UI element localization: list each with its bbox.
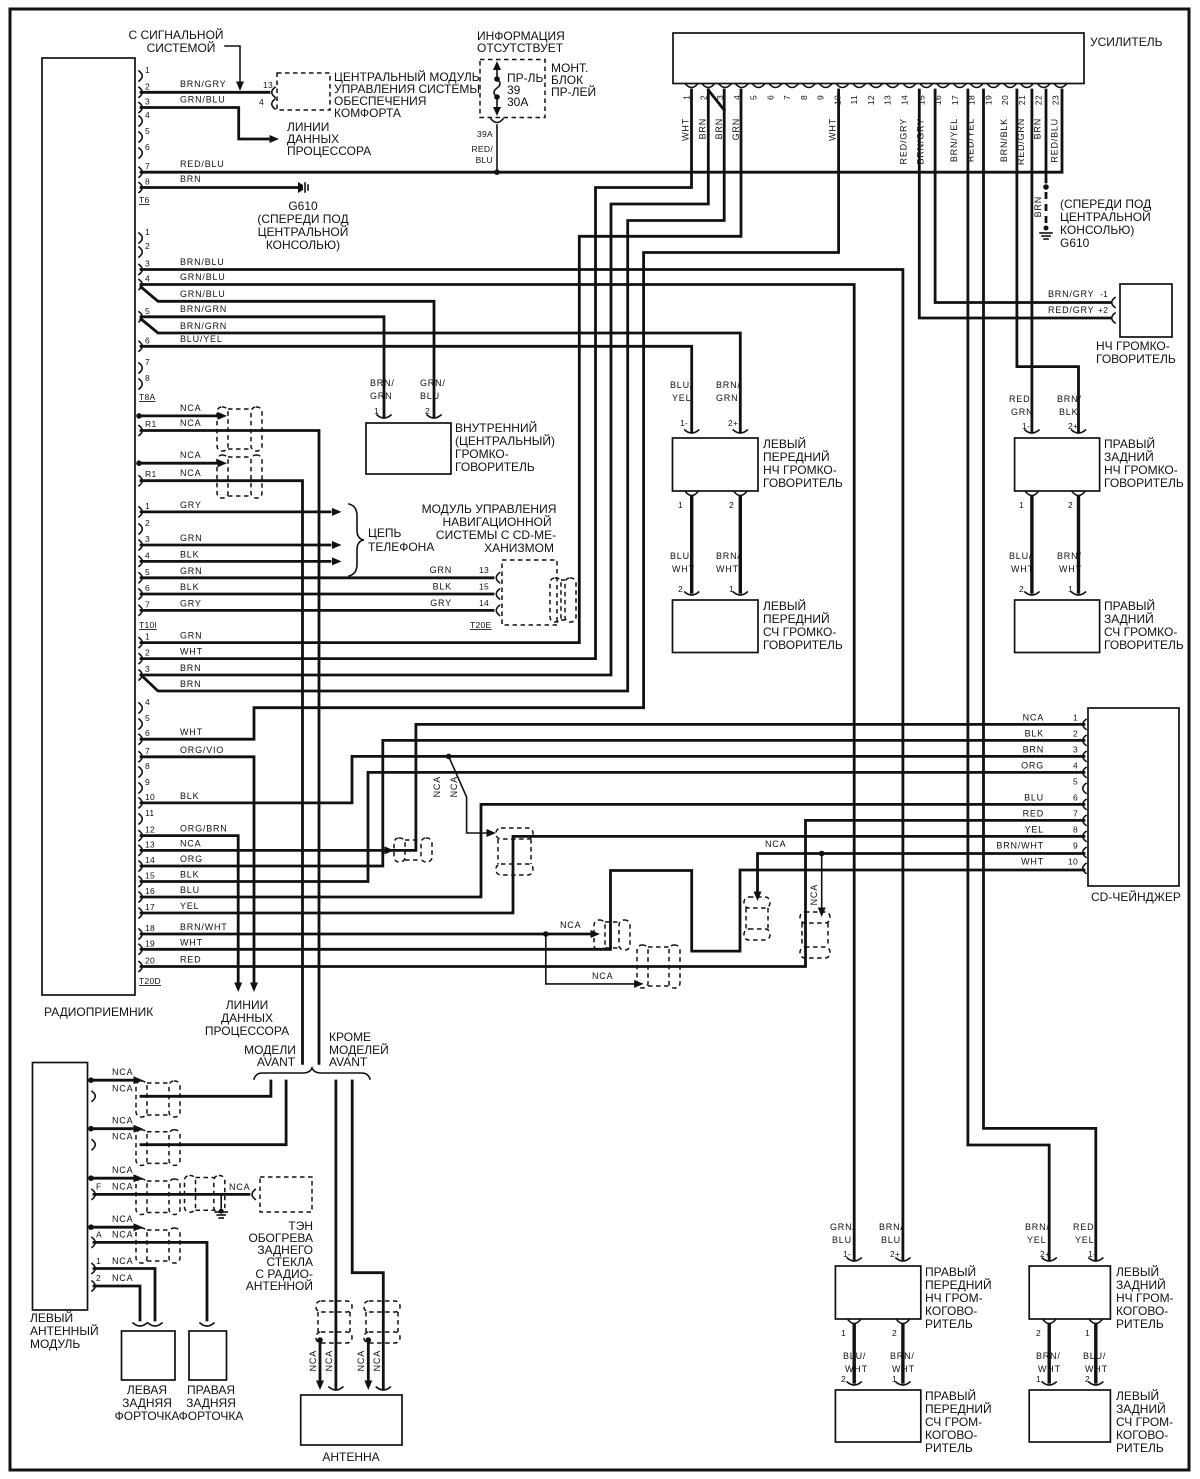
svg-text:BRN/GRY: BRN/GRY — [1048, 289, 1094, 299]
svg-text:2: 2 — [96, 1273, 101, 1283]
svg-text:BRN/: BRN/ — [1036, 1351, 1061, 1361]
svg-text:WHT: WHT — [1021, 856, 1044, 866]
svg-text:КОГОВО-: КОГОВО- — [925, 1304, 977, 1318]
svg-text:NCA: NCA — [180, 468, 201, 478]
svg-text:NCA: NCA — [180, 418, 201, 428]
svg-text:ГОВОРИТЕЛЬ: ГОВОРИТЕЛЬ — [763, 476, 843, 490]
svg-text:BLK: BLK — [1025, 728, 1044, 738]
svg-text:(СПЕРЕДИ ПОД: (СПЕРЕДИ ПОД — [1060, 197, 1151, 211]
svg-text:T10l: T10l — [139, 620, 157, 630]
svg-text:GRN/: GRN/ — [420, 378, 446, 388]
svg-text:АНТЕННОЙ: АНТЕННОЙ — [246, 1278, 313, 1293]
svg-text:ORG: ORG — [180, 854, 203, 864]
svg-text:9: 9 — [816, 95, 826, 100]
svg-text:6: 6 — [145, 142, 150, 152]
svg-text:39A: 39A — [477, 129, 493, 139]
svg-text:СЧ ГРОМКО-: СЧ ГРОМКО- — [763, 625, 836, 639]
svg-text:NCA: NCA — [308, 1350, 318, 1371]
svg-text:2: 2 — [1073, 728, 1078, 738]
svg-text:BRN/GRY: BRN/GRY — [180, 79, 226, 89]
svg-text:7: 7 — [145, 357, 150, 367]
svg-text:BRN/WHT: BRN/WHT — [996, 840, 1044, 850]
svg-text:BRN/BLK: BRN/BLK — [999, 118, 1009, 162]
svg-text:BRN/BLU: BRN/BLU — [180, 257, 225, 267]
svg-text:NCA: NCA — [112, 1083, 133, 1093]
svg-text:1: 1 — [1036, 1374, 1041, 1384]
svg-text:RED/: RED/ — [471, 144, 493, 154]
svg-text:YEL: YEL — [1025, 824, 1044, 834]
svg-text:ПЕРЕДНИЙ: ПЕРЕДНИЙ — [763, 449, 830, 464]
svg-text:МОДУЛЬ: МОДУЛЬ — [30, 1337, 80, 1351]
svg-text:BLU/: BLU/ — [1083, 1351, 1106, 1361]
svg-text:НЧ ГРОМ-: НЧ ГРОМ- — [925, 1291, 983, 1305]
svg-text:30А: 30А — [507, 95, 528, 109]
svg-text:13: 13 — [479, 565, 489, 575]
svg-text:КОГОВО-: КОГОВО- — [1116, 1304, 1168, 1318]
svg-text:2: 2 — [145, 81, 150, 91]
svg-text:NCA: NCA — [180, 450, 201, 460]
svg-text:РАДИОПРИЕМНИК: РАДИОПРИЕМНИК — [44, 1005, 153, 1019]
svg-text:BRN/: BRN/ — [716, 551, 741, 561]
svg-text:11: 11 — [145, 808, 154, 818]
svg-text:12: 12 — [145, 825, 155, 835]
svg-text:8: 8 — [1073, 824, 1078, 834]
svg-text:РИТЕЛЬ: РИТЕЛЬ — [925, 1441, 973, 1455]
svg-text:2: 2 — [145, 518, 150, 528]
svg-text:3: 3 — [145, 259, 150, 269]
svg-text:ПРАВАЯ: ПРАВАЯ — [187, 1383, 235, 1397]
svg-text:YEL: YEL — [1075, 1235, 1094, 1245]
svg-text:5: 5 — [145, 306, 150, 316]
svg-text:ORG/VIO: ORG/VIO — [180, 745, 224, 755]
svg-text:ORG: ORG — [1021, 760, 1044, 770]
svg-text:ПР-ЛЕЙ: ПР-ЛЕЙ — [551, 84, 596, 99]
svg-text:УСИЛИТЕЛЬ: УСИЛИТЕЛЬ — [1090, 35, 1163, 49]
svg-text:ЗАДНЯЯ: ЗАДНЯЯ — [186, 1396, 236, 1410]
svg-text:23: 23 — [1050, 95, 1060, 105]
svg-text:WHT: WHT — [681, 118, 691, 141]
svg-text:BRN/WHT: BRN/WHT — [180, 922, 228, 932]
svg-text:BRN: BRN — [180, 174, 201, 184]
svg-text:WHT: WHT — [180, 937, 203, 947]
svg-text:ЗАДНИЙ: ЗАДНИЙ — [1104, 449, 1154, 464]
svg-text:СЧ ГРОМКО-: СЧ ГРОМКО- — [1104, 625, 1177, 639]
svg-text:10: 10 — [145, 792, 155, 802]
svg-text:АНТЕННА: АНТЕННА — [322, 1450, 379, 1464]
svg-text:BRN: BRN — [714, 118, 724, 139]
svg-text:GRN: GRN — [731, 118, 741, 140]
svg-text:ЦЕНТРАЛЬНОЙ: ЦЕНТРАЛЬНОЙ — [1060, 209, 1151, 224]
svg-text:GRY: GRY — [180, 500, 202, 510]
svg-text:NCA: NCA — [112, 1116, 133, 1126]
svg-text:3: 3 — [145, 664, 150, 674]
svg-text:9: 9 — [145, 777, 150, 787]
svg-text:ХАНИЗМОМ: ХАНИЗМОМ — [484, 541, 554, 555]
svg-text:19: 19 — [145, 938, 155, 948]
svg-text:2+: 2+ — [1040, 1249, 1050, 1259]
svg-text:GRN: GRN — [716, 393, 738, 403]
svg-text:6: 6 — [1073, 792, 1078, 802]
svg-text:6: 6 — [765, 95, 775, 100]
svg-text:ВНУТРЕННИЙ: ВНУТРЕННИЙ — [455, 420, 537, 435]
svg-text:5: 5 — [145, 567, 150, 577]
svg-text:2: 2 — [698, 95, 708, 100]
svg-text:8: 8 — [145, 373, 150, 383]
svg-text:BLK: BLK — [180, 791, 199, 801]
svg-text:GRN/: GRN/ — [830, 1222, 856, 1232]
svg-text:NCA: NCA — [449, 776, 459, 797]
svg-text:GRN: GRN — [180, 533, 202, 543]
svg-text:WHT: WHT — [1059, 564, 1082, 574]
svg-text:РИТЕЛЬ: РИТЕЛЬ — [1116, 1441, 1164, 1455]
svg-text:2: 2 — [1036, 1328, 1041, 1338]
svg-text:T20E: T20E — [470, 620, 492, 630]
svg-text:КОМФОРТА: КОМФОРТА — [334, 106, 401, 120]
svg-text:14: 14 — [479, 598, 489, 608]
svg-text:NCA: NCA — [560, 920, 581, 930]
svg-text:21: 21 — [1017, 95, 1027, 105]
svg-text:BRN/: BRN/ — [890, 1351, 915, 1361]
svg-text:ГОВОРИТЕЛЬ: ГОВОРИТЕЛЬ — [1104, 638, 1184, 652]
svg-text:1: 1 — [145, 501, 150, 511]
svg-text:WHT: WHT — [180, 647, 203, 657]
svg-text:КРОМЕ: КРОМЕ — [329, 1030, 371, 1044]
svg-text:RED/GRY: RED/GRY — [1048, 305, 1094, 315]
svg-text:YEL: YEL — [1027, 1235, 1046, 1245]
svg-text:NCA: NCA — [112, 1067, 133, 1077]
svg-text:NCA: NCA — [112, 1273, 133, 1283]
svg-text:BLU: BLU — [881, 1235, 901, 1245]
svg-text:BRN/: BRN/ — [879, 1222, 904, 1232]
svg-text:2: 2 — [145, 648, 150, 658]
svg-text:NCA: NCA — [324, 1350, 334, 1371]
svg-text:22: 22 — [1034, 95, 1044, 105]
svg-text:ГРОМКО-: ГРОМКО- — [455, 447, 509, 461]
svg-text:КОГОВО-: КОГОВО- — [1116, 1428, 1168, 1442]
svg-text:ЛИНИИ: ЛИНИИ — [226, 998, 268, 1012]
svg-text:NCA: NCA — [180, 403, 201, 413]
svg-text:КОГОВО-: КОГОВО- — [925, 1428, 977, 1442]
svg-text:RED/GRY: RED/GRY — [899, 118, 909, 164]
svg-text:6: 6 — [145, 583, 150, 593]
svg-text:BLK: BLK — [1059, 407, 1078, 417]
svg-text:АНТЕННЫЙ: АНТЕННЫЙ — [30, 1323, 99, 1338]
svg-text:YEL: YEL — [672, 393, 691, 403]
svg-text:3: 3 — [145, 97, 150, 107]
svg-text:13: 13 — [145, 839, 155, 849]
svg-text:ПРОЦЕССОРА: ПРОЦЕССОРА — [287, 144, 371, 158]
svg-text:BRN: BRN — [697, 118, 707, 139]
svg-text:9: 9 — [1073, 840, 1078, 850]
svg-text:GRN/BLU: GRN/BLU — [180, 95, 226, 105]
svg-text:BRN/GRN: BRN/GRN — [180, 304, 227, 314]
svg-text:ЦЕНТРАЛЬНОЙ: ЦЕНТРАЛЬНОЙ — [258, 224, 349, 239]
svg-text:6: 6 — [145, 728, 150, 738]
svg-text:20: 20 — [145, 956, 155, 966]
svg-text:5: 5 — [1073, 776, 1078, 786]
svg-text:GRN: GRN — [180, 631, 202, 641]
svg-text:T20D: T20D — [139, 976, 161, 986]
svg-text:1: 1 — [145, 227, 150, 237]
svg-text:5: 5 — [145, 126, 150, 136]
svg-text:ЛЕВЫЙ: ЛЕВЫЙ — [1116, 1264, 1159, 1279]
svg-text:2: 2 — [1019, 584, 1024, 594]
svg-text:5: 5 — [145, 713, 150, 723]
svg-text:1: 1 — [1019, 500, 1024, 510]
svg-text:13: 13 — [883, 95, 893, 105]
svg-text:МОДУЛЬ УПРАВЛЕНИЯ: МОДУЛЬ УПРАВЛЕНИЯ — [422, 502, 557, 516]
svg-text:РИТЕЛЬ: РИТЕЛЬ — [1116, 1317, 1164, 1331]
svg-text:ORG/BRN: ORG/BRN — [180, 824, 228, 834]
svg-text:1: 1 — [96, 1256, 101, 1266]
svg-text:(СПЕРЕДИ ПОД: (СПЕРЕДИ ПОД — [257, 212, 348, 226]
svg-text:2: 2 — [145, 241, 150, 251]
svg-text:1: 1 — [678, 500, 683, 510]
svg-text:NCA: NCA — [432, 776, 442, 797]
svg-text:NCA: NCA — [112, 1214, 133, 1224]
svg-text:YEL: YEL — [180, 901, 199, 911]
svg-text:1-: 1- — [1022, 421, 1030, 431]
svg-text:2: 2 — [678, 584, 683, 594]
svg-text:1: 1 — [1085, 1328, 1090, 1338]
svg-text:+2: +2 — [1098, 305, 1108, 315]
svg-text:11: 11 — [849, 95, 859, 104]
svg-text:BLU: BLU — [1024, 792, 1044, 802]
svg-text:NCA: NCA — [112, 1165, 133, 1175]
svg-text:15: 15 — [916, 95, 926, 105]
svg-text:С СИГНАЛЬНОЙ: С СИГНАЛЬНОЙ — [128, 27, 223, 42]
svg-text:WHT: WHT — [892, 1364, 915, 1374]
svg-text:НЧ ГРОМКО-: НЧ ГРОМКО- — [763, 463, 837, 477]
svg-text:NCA: NCA — [809, 884, 819, 905]
svg-text:WHT: WHT — [828, 118, 838, 141]
svg-text:РИТЕЛЬ: РИТЕЛЬ — [925, 1317, 973, 1331]
svg-text:ГОВОРИТЕЛЬ: ГОВОРИТЕЛЬ — [455, 460, 535, 474]
svg-text:2+: 2+ — [1068, 421, 1078, 431]
svg-text:4: 4 — [145, 274, 150, 284]
svg-text:ПЕРЕДНИЙ: ПЕРЕДНИЙ — [925, 1277, 992, 1292]
svg-text:(ЦЕНТРАЛЬНЫЙ): (ЦЕНТРАЛЬНЫЙ) — [455, 433, 555, 448]
svg-text:ПРАВЫЙ: ПРАВЫЙ — [925, 1388, 976, 1403]
svg-text:2: 2 — [729, 500, 734, 510]
svg-text:ЦЕПЬ: ЦЕПЬ — [368, 526, 402, 540]
svg-text:WHT: WHT — [180, 727, 203, 737]
svg-text:GRN: GRN — [430, 565, 452, 575]
svg-text:T8A: T8A — [139, 392, 156, 402]
svg-text:BLU/: BLU/ — [670, 380, 693, 390]
svg-text:BRN: BRN — [180, 663, 201, 673]
svg-text:ГОВОРИТЕЛЬ: ГОВОРИТЕЛЬ — [763, 638, 843, 652]
svg-text:NCA: NCA — [112, 1132, 133, 1142]
svg-text:BRN/: BRN/ — [370, 378, 395, 388]
svg-text:G610: G610 — [1060, 236, 1090, 250]
svg-text:GRN: GRN — [370, 391, 392, 401]
svg-text:BRN: BRN — [1033, 118, 1043, 139]
svg-text:ОТСУТСТВУЕТ: ОТСУТСТВУЕТ — [477, 41, 564, 55]
svg-text:СЧ ГРОМ-: СЧ ГРОМ- — [925, 1415, 982, 1429]
svg-text:12: 12 — [866, 95, 876, 105]
svg-text:20: 20 — [1000, 95, 1010, 105]
svg-text:NCA: NCA — [229, 1182, 250, 1192]
svg-text:ПРАВЫЙ: ПРАВЫЙ — [1104, 598, 1155, 613]
svg-text:BLK: BLK — [180, 549, 199, 559]
svg-text:14: 14 — [145, 855, 155, 865]
svg-text:NCA: NCA — [356, 1350, 366, 1371]
svg-text:NCA: NCA — [1023, 712, 1044, 722]
svg-text:BRN/: BRN/ — [1025, 1222, 1050, 1232]
svg-text:BLK: BLK — [180, 870, 199, 880]
svg-text:2: 2 — [1068, 500, 1073, 510]
svg-text:ЛЕВЫЙ: ЛЕВЫЙ — [30, 1310, 73, 1325]
svg-text:BLU: BLU — [180, 885, 200, 895]
svg-text:A: A — [96, 1229, 102, 1239]
svg-text:7: 7 — [1073, 808, 1078, 818]
svg-text:7: 7 — [145, 599, 150, 609]
svg-text:BLU: BLU — [476, 155, 493, 165]
svg-text:10: 10 — [1068, 856, 1078, 866]
svg-text:18: 18 — [145, 923, 155, 933]
svg-text:15: 15 — [145, 871, 155, 881]
svg-text:4: 4 — [1073, 760, 1078, 770]
svg-text:GRN/BLU: GRN/BLU — [180, 289, 226, 299]
svg-text:NCA: NCA — [112, 1256, 133, 1266]
svg-text:4: 4 — [145, 697, 150, 707]
svg-text:2+: 2+ — [890, 1249, 900, 1259]
svg-text:ЗАДНИЙ: ЗАДНИЙ — [1116, 1401, 1166, 1416]
svg-text:CD-ЧЕЙНДЖЕР: CD-ЧЕЙНДЖЕР — [1091, 889, 1181, 904]
svg-text:ДАННЫХ: ДАННЫХ — [221, 1011, 273, 1025]
svg-text:AVANT: AVANT — [257, 1055, 296, 1069]
svg-text:КОНСОЛЬЮ): КОНСОЛЬЮ) — [1060, 223, 1134, 237]
svg-text:WHT: WHT — [1011, 564, 1034, 574]
svg-text:ПРАВЫЙ: ПРАВЫЙ — [925, 1264, 976, 1279]
svg-text:BRN: BRN — [180, 679, 201, 689]
svg-text:7: 7 — [782, 95, 792, 100]
svg-text:7: 7 — [145, 746, 150, 756]
svg-text:BRN/GRN: BRN/GRN — [180, 321, 227, 331]
svg-text:4: 4 — [145, 550, 150, 560]
svg-text:ЛЕВЫЙ: ЛЕВЫЙ — [1116, 1388, 1159, 1403]
svg-text:1: 1 — [1073, 712, 1078, 722]
svg-text:17: 17 — [950, 95, 960, 105]
svg-text:8: 8 — [145, 761, 150, 771]
svg-text:1: 1 — [145, 632, 150, 642]
svg-text:T6: T6 — [139, 195, 150, 205]
svg-text:GRN: GRN — [1011, 407, 1033, 417]
svg-text:BLU/: BLU/ — [1009, 551, 1032, 561]
svg-text:WHT: WHT — [716, 564, 739, 574]
svg-text:BLU: BLU — [832, 1235, 852, 1245]
svg-text:3: 3 — [145, 534, 150, 544]
svg-text:BLU/: BLU/ — [670, 551, 693, 561]
svg-text:ЛЕВЫЙ: ЛЕВЫЙ — [763, 436, 806, 451]
svg-text:WHT: WHT — [1038, 1364, 1061, 1374]
svg-text:BLU: BLU — [420, 391, 440, 401]
svg-text:WHT: WHT — [1085, 1364, 1108, 1374]
svg-text:-1: -1 — [1100, 289, 1108, 299]
svg-text:ЛЕВАЯ: ЛЕВАЯ — [127, 1383, 167, 1397]
svg-text:ЗАДНИЙ: ЗАДНИЙ — [1104, 611, 1154, 626]
svg-text:НЧ ГРОМ-: НЧ ГРОМ- — [1116, 1291, 1174, 1305]
svg-text:RED: RED — [1023, 808, 1044, 818]
svg-text:BLK: BLK — [180, 582, 199, 592]
svg-text:NCA: NCA — [765, 839, 786, 849]
svg-text:7: 7 — [145, 161, 150, 171]
svg-text:BRN/: BRN/ — [1057, 394, 1082, 404]
svg-text:F: F — [96, 1181, 102, 1191]
svg-text:BRN/: BRN/ — [716, 380, 741, 390]
svg-text:3: 3 — [1073, 744, 1078, 754]
svg-text:ТЕЛЕФОНА: ТЕЛЕФОНА — [368, 540, 434, 554]
svg-text:NCA: NCA — [112, 1229, 133, 1239]
svg-text:ЗАДНИЙ: ЗАДНИЙ — [1116, 1277, 1166, 1292]
svg-text:НЧ ГРОМКО-: НЧ ГРОМКО- — [1104, 463, 1178, 477]
svg-text:BLK: BLK — [433, 582, 452, 592]
svg-text:G610: G610 — [288, 199, 318, 213]
svg-text:13: 13 — [263, 80, 273, 90]
svg-text:NCA: NCA — [112, 1181, 133, 1191]
svg-text:RED/: RED/ — [1009, 394, 1034, 404]
svg-text:ПЕРЕДНИЙ: ПЕРЕДНИЙ — [925, 1401, 992, 1416]
svg-text:NCA: NCA — [372, 1350, 382, 1371]
svg-text:ЗАДНЯЯ: ЗАДНЯЯ — [122, 1396, 172, 1410]
svg-text:ФОРТОЧКА: ФОРТОЧКА — [179, 1409, 244, 1423]
svg-text:СИСТЕМЫ С CD-МЕ-: СИСТЕМЫ С CD-МЕ- — [436, 528, 556, 542]
svg-text:8: 8 — [799, 95, 809, 100]
svg-text:BLU/YEL: BLU/YEL — [180, 334, 223, 344]
svg-text:RED/BLU: RED/BLU — [1049, 118, 1059, 163]
svg-text:СИСТЕМОЙ: СИСТЕМОЙ — [147, 40, 216, 55]
svg-text:GRN/BLU: GRN/BLU — [180, 272, 226, 282]
svg-text:17: 17 — [145, 902, 155, 912]
svg-text:BRN: BRN — [1033, 196, 1043, 217]
svg-text:R1: R1 — [145, 469, 156, 479]
svg-text:6: 6 — [145, 335, 150, 345]
svg-text:НЧ ГРОМКО-: НЧ ГРОМКО- — [1096, 339, 1170, 353]
svg-text:GRN: GRN — [180, 566, 202, 576]
svg-text:NCA: NCA — [180, 838, 201, 848]
svg-text:ГОВОРИТЕЛЬ: ГОВОРИТЕЛЬ — [1104, 476, 1184, 490]
svg-text:BRN/: BRN/ — [1057, 551, 1082, 561]
svg-text:5: 5 — [749, 95, 759, 100]
svg-text:R1: R1 — [145, 419, 156, 429]
svg-text:15: 15 — [479, 582, 489, 592]
svg-text:ГОВОРИТЕЛЬ: ГОВОРИТЕЛЬ — [1096, 352, 1176, 366]
svg-text:ПРАВЫЙ: ПРАВЫЙ — [1104, 436, 1155, 451]
svg-text:ПЕРЕДНИЙ: ПЕРЕДНИЙ — [763, 611, 830, 626]
svg-text:4: 4 — [259, 97, 264, 107]
svg-text:WHT: WHT — [672, 564, 695, 574]
svg-text:1-: 1- — [680, 418, 688, 428]
svg-text:1: 1 — [682, 95, 692, 100]
svg-text:BRN: BRN — [1023, 744, 1044, 754]
svg-text:RED/BLU: RED/BLU — [180, 159, 225, 169]
svg-text:AVANT: AVANT — [329, 1055, 368, 1069]
svg-text:14: 14 — [900, 95, 910, 105]
svg-text:NCA: NCA — [592, 971, 613, 981]
svg-text:2: 2 — [892, 1328, 897, 1338]
svg-text:4: 4 — [145, 110, 150, 120]
svg-text:WHT: WHT — [845, 1364, 868, 1374]
svg-text:RED/: RED/ — [1073, 1222, 1098, 1232]
svg-text:ФОРТОЧКА: ФОРТОЧКА — [115, 1409, 180, 1423]
svg-text:2+: 2+ — [728, 418, 738, 428]
svg-text:GRY: GRY — [430, 598, 452, 608]
svg-text:2: 2 — [841, 1374, 846, 1384]
svg-text:GRY: GRY — [180, 598, 202, 608]
svg-text:ПРОЦЕССОРА: ПРОЦЕССОРА — [205, 1024, 289, 1038]
svg-text:1: 1 — [841, 1328, 846, 1338]
